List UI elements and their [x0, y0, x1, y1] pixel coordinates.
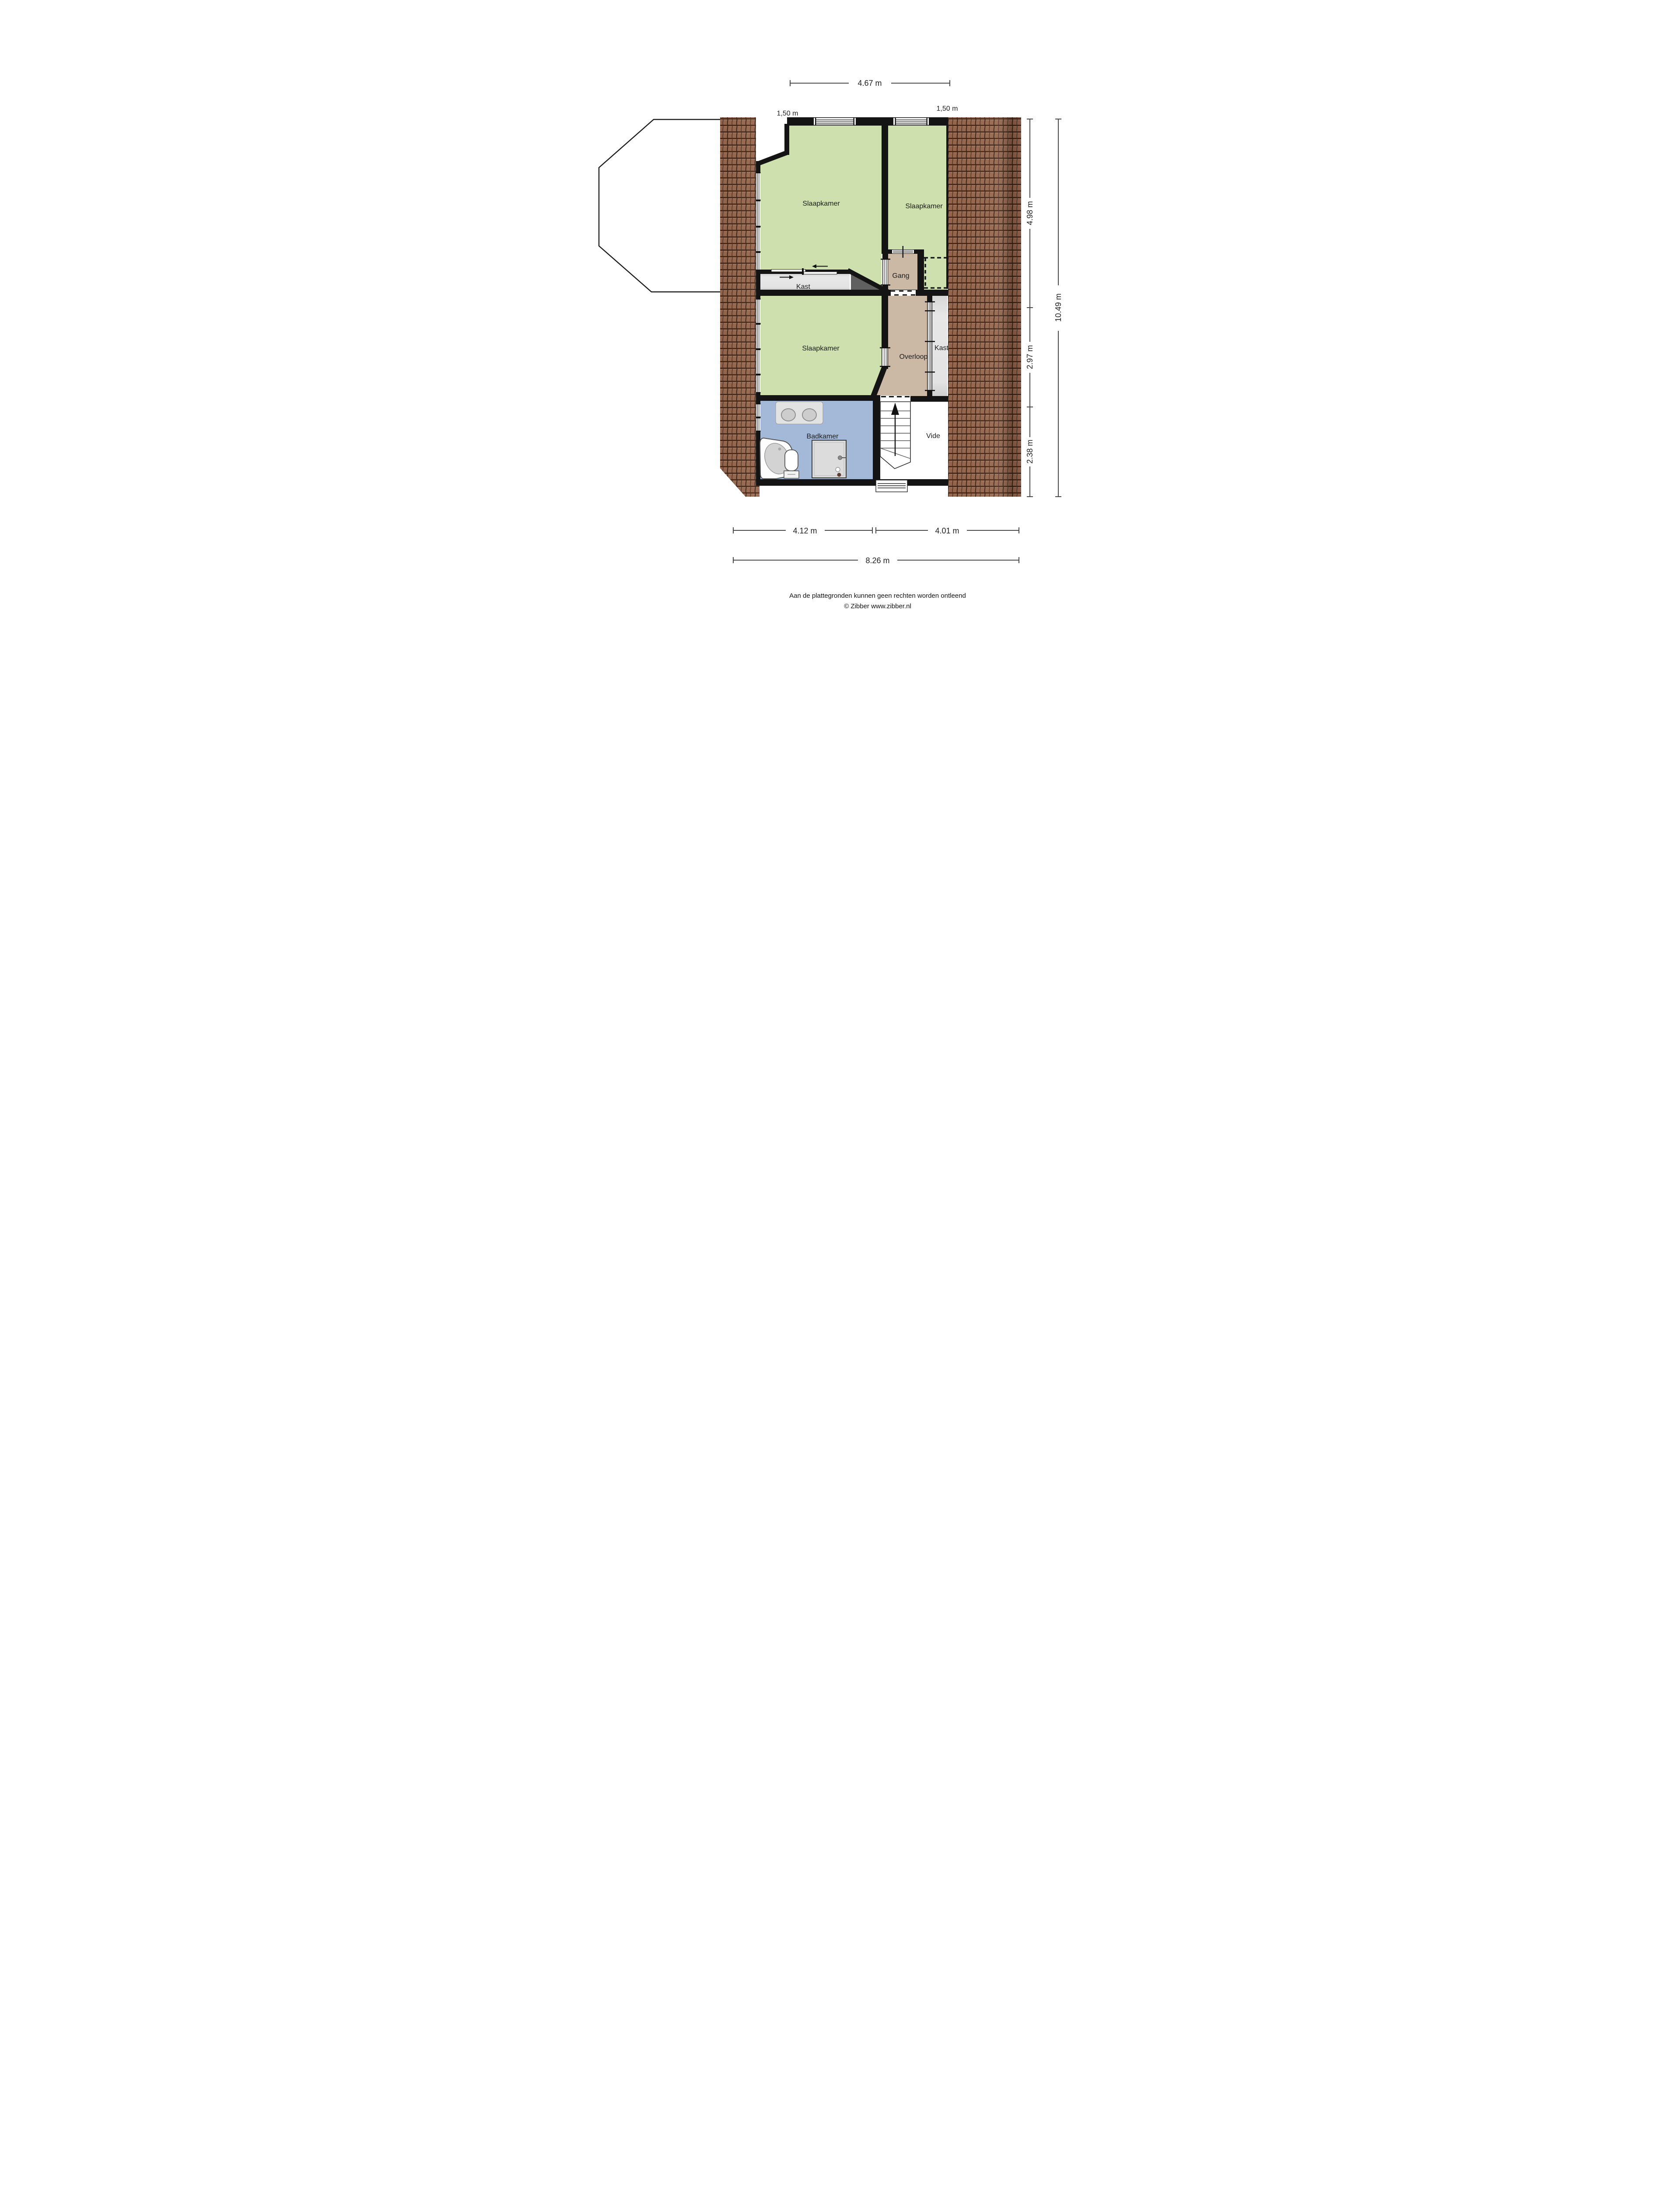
dim-right-total-label: 10.49 m — [1054, 293, 1063, 322]
dim-bottom-right: 4.01 m — [876, 526, 1019, 535]
dim-right-total: 10.49 m — [1054, 119, 1063, 497]
dim-bottom-total-label: 8.26 m — [865, 556, 889, 565]
label-badkamer: Badkamer — [807, 433, 839, 440]
roof-right — [948, 117, 1021, 497]
dim-offset-right-label: 1,50 m — [937, 105, 958, 112]
wall-bottom — [756, 479, 948, 486]
label-gang: Gang — [892, 272, 909, 280]
passage-stairs-top — [880, 396, 910, 401]
window-bottom — [876, 480, 907, 492]
label-vide: Vide — [926, 432, 940, 440]
wall-bedrooms-divider — [882, 126, 888, 254]
window-top-left — [814, 118, 856, 125]
window-left-segment — [756, 298, 761, 324]
dim-offset-left-label: 1,50 m — [777, 110, 798, 117]
window-left-segment — [756, 325, 761, 350]
shower — [812, 440, 846, 478]
label-slaapkamer-top-right: Slaapkamer — [905, 203, 943, 210]
dim-right-middle-label: 2.97 m — [1025, 345, 1034, 369]
window-left-segment — [756, 350, 761, 375]
label-slaapkamer-middle: Slaapkamer — [802, 345, 840, 352]
wall-right-edge — [946, 126, 948, 289]
window-left-segment — [756, 253, 761, 270]
label-overloop: Overloop — [899, 353, 928, 361]
bay-outline — [599, 119, 721, 292]
label-kast-right: Kast — [934, 344, 949, 352]
dim-bottom-right-label: 4.01 m — [935, 526, 959, 535]
window-left-segment — [756, 403, 761, 418]
window-left-segment — [756, 418, 761, 432]
wall-kast-right-bottom — [910, 396, 948, 402]
wall-badkamer-vide — [873, 395, 880, 479]
floorplan-page: 4.67 m 1,50 m 1,50 m 4.98 m 2.97 m 2.38 … — [588, 0, 1092, 672]
wall-middle — [756, 290, 948, 296]
dim-right-lower-label: 2.38 m — [1025, 439, 1034, 463]
window-top-right — [893, 118, 929, 125]
footer-disclaimer: Aan de plattegronden kunnen geen rechten… — [789, 592, 966, 600]
dim-bottom-left: 4.12 m — [733, 526, 872, 535]
wall-topleft-stub — [784, 124, 789, 155]
window-left-segment — [756, 375, 761, 393]
windows-left-wall — [756, 172, 761, 432]
door-gang-bottom — [891, 290, 916, 296]
stairs — [880, 402, 910, 469]
window-left-segment — [756, 228, 761, 252]
floorplan-drawing: 4.67 m 1,50 m 1,50 m 4.98 m 2.97 m 2.38 … — [588, 0, 1092, 672]
dim-top-width-label: 4.67 m — [857, 79, 882, 88]
window-left-segment — [756, 201, 761, 227]
label-slaapkamer-top-left: Slaapkamer — [802, 200, 840, 207]
dim-top-width: 4.67 m — [790, 79, 950, 88]
dim-right-inner: 4.98 m 2.97 m 2.38 m — [1025, 119, 1034, 497]
wall-gang-right — [917, 254, 924, 296]
dim-bottom-total: 8.26 m — [733, 556, 1019, 565]
footer-credit: © Zibber www.zibber.nl — [844, 603, 911, 610]
label-kast-upper: Kast — [796, 283, 811, 291]
dim-bottom-left-label: 4.12 m — [793, 526, 817, 535]
window-left-segment — [756, 172, 761, 201]
vanity-double-sink — [776, 402, 823, 424]
wall-badkamer-top — [756, 395, 873, 401]
toilet — [784, 450, 799, 478]
dim-right-upper-label: 4.98 m — [1025, 201, 1034, 225]
